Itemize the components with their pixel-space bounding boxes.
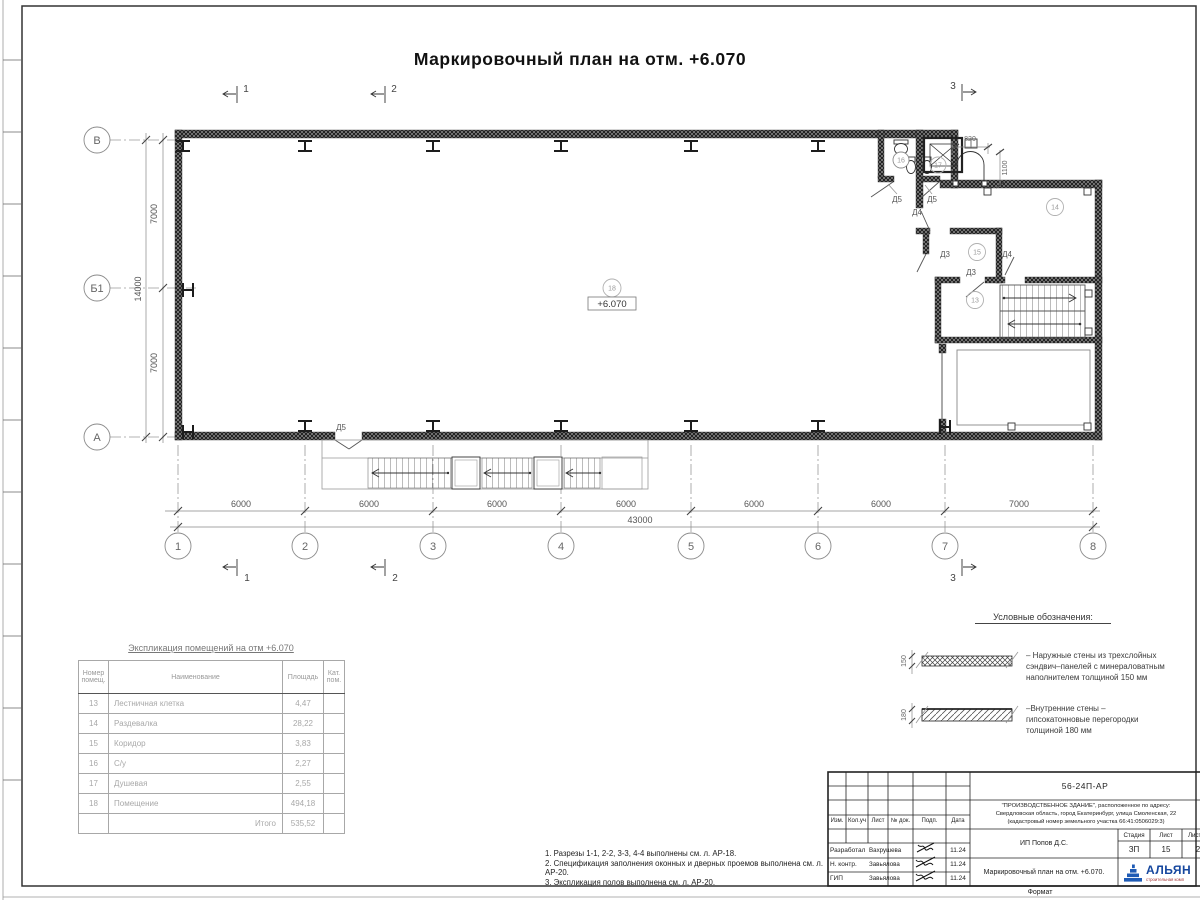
room-tag-stairwell: 13 <box>971 298 979 305</box>
door-width-dim: 820 <box>964 136 976 143</box>
tb-col-koluch: Кол.уч <box>846 818 868 824</box>
dim-label: 6000 <box>744 499 764 509</box>
company-logo-subtext: строительная комп <box>1146 877 1200 882</box>
dim-label: 6000 <box>616 499 636 509</box>
dim-label: 7000 <box>149 204 159 224</box>
elevation-mark: +6.070 <box>597 299 626 310</box>
col-header-area: Площадь <box>283 661 324 694</box>
table-row: 14Раздевалка28,22 <box>79 714 345 734</box>
tb-client: ИП Попов Д.С. <box>970 840 1118 847</box>
note-line: 2. Спецификация заполнения оконных и две… <box>545 859 845 878</box>
axis-col-label: 2 <box>302 541 308 553</box>
tb-role: Разработал <box>830 847 872 854</box>
tb-stage-label: Стадия <box>1118 832 1150 839</box>
door-label: Д3 <box>940 250 950 259</box>
section-label: 3 <box>950 81 956 92</box>
door-labels: Д5 Д5 Д4 Д3 Д4 Д3 Д5 <box>336 184 1012 432</box>
drawing-sheet: В Б1 А 1 2 3 4 5 6 7 8 6000 6000 6000 60… <box>0 0 1200 900</box>
door-label: Д5 <box>927 195 937 204</box>
table-total-row: Итого535,52 <box>79 814 345 834</box>
total-value: 535,52 <box>283 814 324 834</box>
dim-label: 6000 <box>231 499 251 509</box>
note-line: 1. Разрезы 1-1, 2-2, 3-3, 4-4 выполнены … <box>545 849 845 859</box>
dim-label: 7000 <box>1009 499 1029 509</box>
legend-internal-walls: –Внутренние стены – гипсокатонновые пере… <box>1026 703 1200 736</box>
section-marks: 1 2 3 1 2 3 <box>223 81 976 584</box>
dim-label: 7000 <box>149 353 159 373</box>
legend-int-thickness: 180 <box>901 709 908 721</box>
table-row: 18Помещение494,18 <box>79 794 345 814</box>
floor-opening <box>942 350 1090 425</box>
tb-stage-value: ЗП <box>1118 845 1150 854</box>
tb-col-list: Лист <box>868 818 888 824</box>
door-label: Д5 <box>892 195 902 204</box>
door-label: Д5 <box>336 423 346 432</box>
format-label: Формат <box>1000 889 1080 896</box>
axis-col-label: 7 <box>942 541 948 553</box>
tb-sheets-value: 2 <box>1182 845 1200 854</box>
door-label: Д4 <box>912 208 922 217</box>
dimensions: 6000 6000 6000 6000 6000 6000 7000 43000… <box>133 133 1100 531</box>
room-tag-hall: 18 <box>608 286 616 293</box>
room-tag-shower: 17 <box>934 163 942 170</box>
notes: 1. Разрезы 1-1, 2-2, 3-3, 4-4 выполнены … <box>545 849 845 887</box>
table-header-row: Номер помещ. Наименование Площадь Кат. п… <box>79 661 345 694</box>
company-logo-text: АЛЬЯН <box>1146 863 1200 877</box>
room-schedule: Экспликация помещений на отм +6.070 Номе… <box>78 643 344 834</box>
tb-sheet-value: 15 <box>1150 845 1182 854</box>
legend-title: Условные обозначения: <box>975 612 1111 624</box>
dim-total-label: 14000 <box>133 276 143 301</box>
axis-row-label: Б1 <box>90 283 103 295</box>
legend-samples: 150 180 <box>901 650 1018 728</box>
tb-role: Н. контр. <box>830 861 872 868</box>
section-label: 3 <box>950 573 956 584</box>
axis-col-label: 1 <box>175 541 181 553</box>
axis-row-label: В <box>93 135 100 147</box>
room-tag-corridor: 15 <box>973 250 981 257</box>
tb-date: 11.24 <box>946 861 970 868</box>
tb-col-podp: Подп. <box>913 818 946 824</box>
section-label: 2 <box>391 84 397 95</box>
tb-project-description: "ПРОИЗВОДСТВЕННОЕ ЗДАНИЕ", расположенное… <box>972 803 1200 826</box>
dim-label: 6000 <box>487 499 507 509</box>
tb-doc-number: 56-24П-АР <box>970 781 1200 791</box>
door-leaves <box>335 182 1014 449</box>
tb-name: Завьялова <box>869 875 913 882</box>
axis-row-label: А <box>93 432 101 444</box>
walls <box>175 130 1102 440</box>
table-row: 16С/у2,27 <box>79 754 345 774</box>
tb-col-izm: Изм. <box>828 818 846 824</box>
tb-date: 11.24 <box>946 847 970 854</box>
dim-label: 6000 <box>359 499 379 509</box>
table-row: 17Душевая2,55 <box>79 774 345 794</box>
legend-ext-thickness: 150 <box>901 655 908 667</box>
section-label: 2 <box>392 573 398 584</box>
exterior-stair <box>322 440 648 489</box>
legend-external-walls: – Наружные стены из трехслойных сэндвич–… <box>1026 650 1200 683</box>
room-schedule-title: Экспликация помещений на отм +6.070 <box>78 643 344 653</box>
axis-col-label: 8 <box>1090 541 1096 553</box>
note-line: 3. Экспликация полов выполнена см. л. АР… <box>545 878 845 888</box>
door-label: Д4 <box>1002 250 1012 259</box>
tb-role: ГИП <box>830 875 872 882</box>
col-header-number: Номер помещ. <box>79 661 109 694</box>
axis-col-label: 3 <box>430 541 436 553</box>
axis-col-label: 6 <box>815 541 821 553</box>
tb-sheets-label: Листов <box>1182 832 1200 839</box>
section-label: 1 <box>244 573 250 584</box>
door-label: Д3 <box>966 268 976 277</box>
tb-col-data: Дата <box>946 818 970 824</box>
door-depth-dim: 1100 <box>1002 160 1009 175</box>
tb-name: Вахрушева <box>869 847 913 854</box>
drawing-title: Маркировочный план на отм. +6.070 <box>300 49 860 70</box>
axis-col-label: 4 <box>558 541 564 553</box>
room-schedule-table: Номер помещ. Наименование Площадь Кат. п… <box>78 660 345 834</box>
dim-label: 6000 <box>871 499 891 509</box>
col-header-category: Кат. пом. <box>324 661 345 694</box>
total-label: Итого <box>109 814 283 834</box>
tb-date: 11.24 <box>946 875 970 882</box>
section-label: 1 <box>243 84 249 95</box>
tb-sheet-label: Лист <box>1150 832 1182 839</box>
room-tag-locker: 14 <box>1051 205 1059 212</box>
room-tag-wc: 16 <box>897 158 905 165</box>
tb-name: Завьялова <box>869 861 913 868</box>
axis-col-label: 5 <box>688 541 694 553</box>
table-row: 15Коридор3,83 <box>79 734 345 754</box>
col-header-name: Наименование <box>109 661 283 694</box>
tb-sheet-name: Маркировочный план на отм. +6.070. <box>972 869 1116 876</box>
tb-col-ndoc: № док. <box>888 818 913 824</box>
table-row: 13Лестничная клетка4,47 <box>79 694 345 714</box>
internal-stair <box>1000 285 1085 338</box>
dim-total-label: 43000 <box>627 515 652 525</box>
